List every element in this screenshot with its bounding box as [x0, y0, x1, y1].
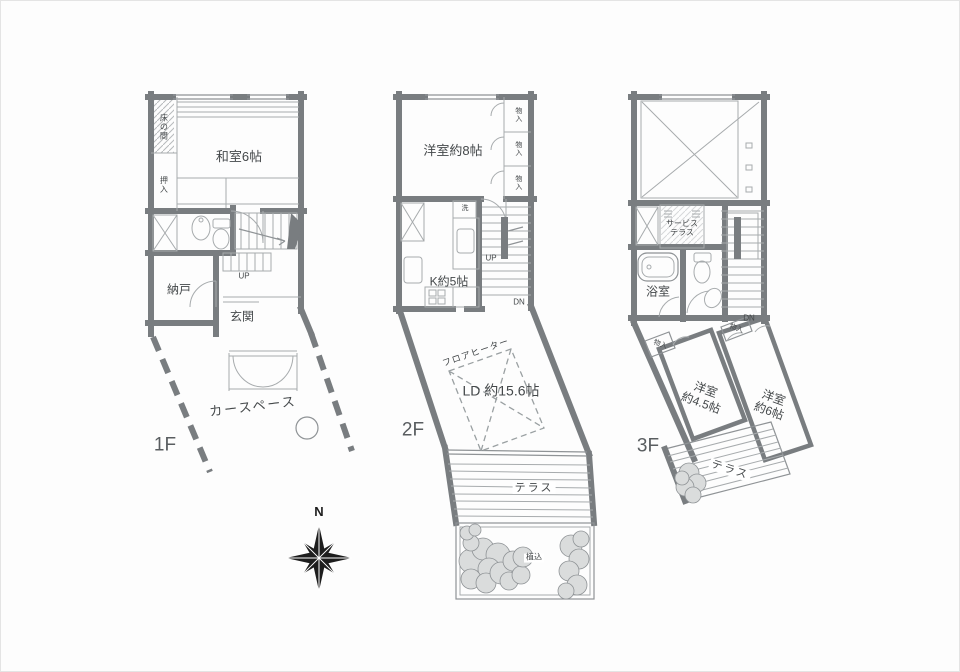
stairs-up-label-2f: UP — [485, 255, 496, 264]
floorplan-page: 床の間 押入 和室6帖 UP 納戸 玄関 カースペース 1F 洋室約8帖 物入 … — [0, 0, 960, 672]
stairs-dn-label-2f: DN — [513, 299, 525, 308]
room-label-ld: LD 約15.6帖 — [462, 383, 539, 398]
floor-label-3f: 3F — [637, 437, 659, 458]
service-terrace-line1: サービス — [666, 219, 698, 228]
floor-label-1f: 1F — [154, 436, 176, 457]
floor-label-2f: 2F — [402, 421, 424, 442]
room-label-tokonoma: 床の間 — [159, 114, 168, 141]
room-label-nando: 納戸 — [167, 283, 191, 296]
planting-label: 植込 — [524, 554, 544, 563]
room-label-western8: 洋室約8帖 — [423, 144, 482, 158]
compass-rose-icon — [286, 525, 352, 591]
room-label-bathroom: 浴室 — [646, 285, 670, 298]
compass-north-label: N — [314, 505, 323, 519]
floorplan-graphics — [1, 1, 960, 672]
room-label-genkan: 玄関 — [230, 310, 254, 323]
room-label-service-terrace: サービス テラス — [666, 219, 698, 237]
laundry-label: 洗 — [462, 205, 469, 213]
room-label-oshiire: 押入 — [159, 176, 168, 194]
terrace-label-2f: テラス — [513, 482, 556, 494]
closet-label-monoire-3: 物入 — [514, 175, 522, 191]
stairs-up-label-1f: UP — [238, 273, 249, 282]
room-label-washitsu: 和室6帖 — [216, 150, 262, 164]
service-terrace-line2: テラス — [670, 228, 694, 237]
stairs-dn-label-3f: DN — [743, 315, 755, 324]
closet-label-monoire-2: 物入 — [514, 141, 522, 157]
room-label-kitchen: K約5帖 — [430, 275, 469, 288]
closet-label-monoire-1: 物入 — [514, 107, 522, 123]
